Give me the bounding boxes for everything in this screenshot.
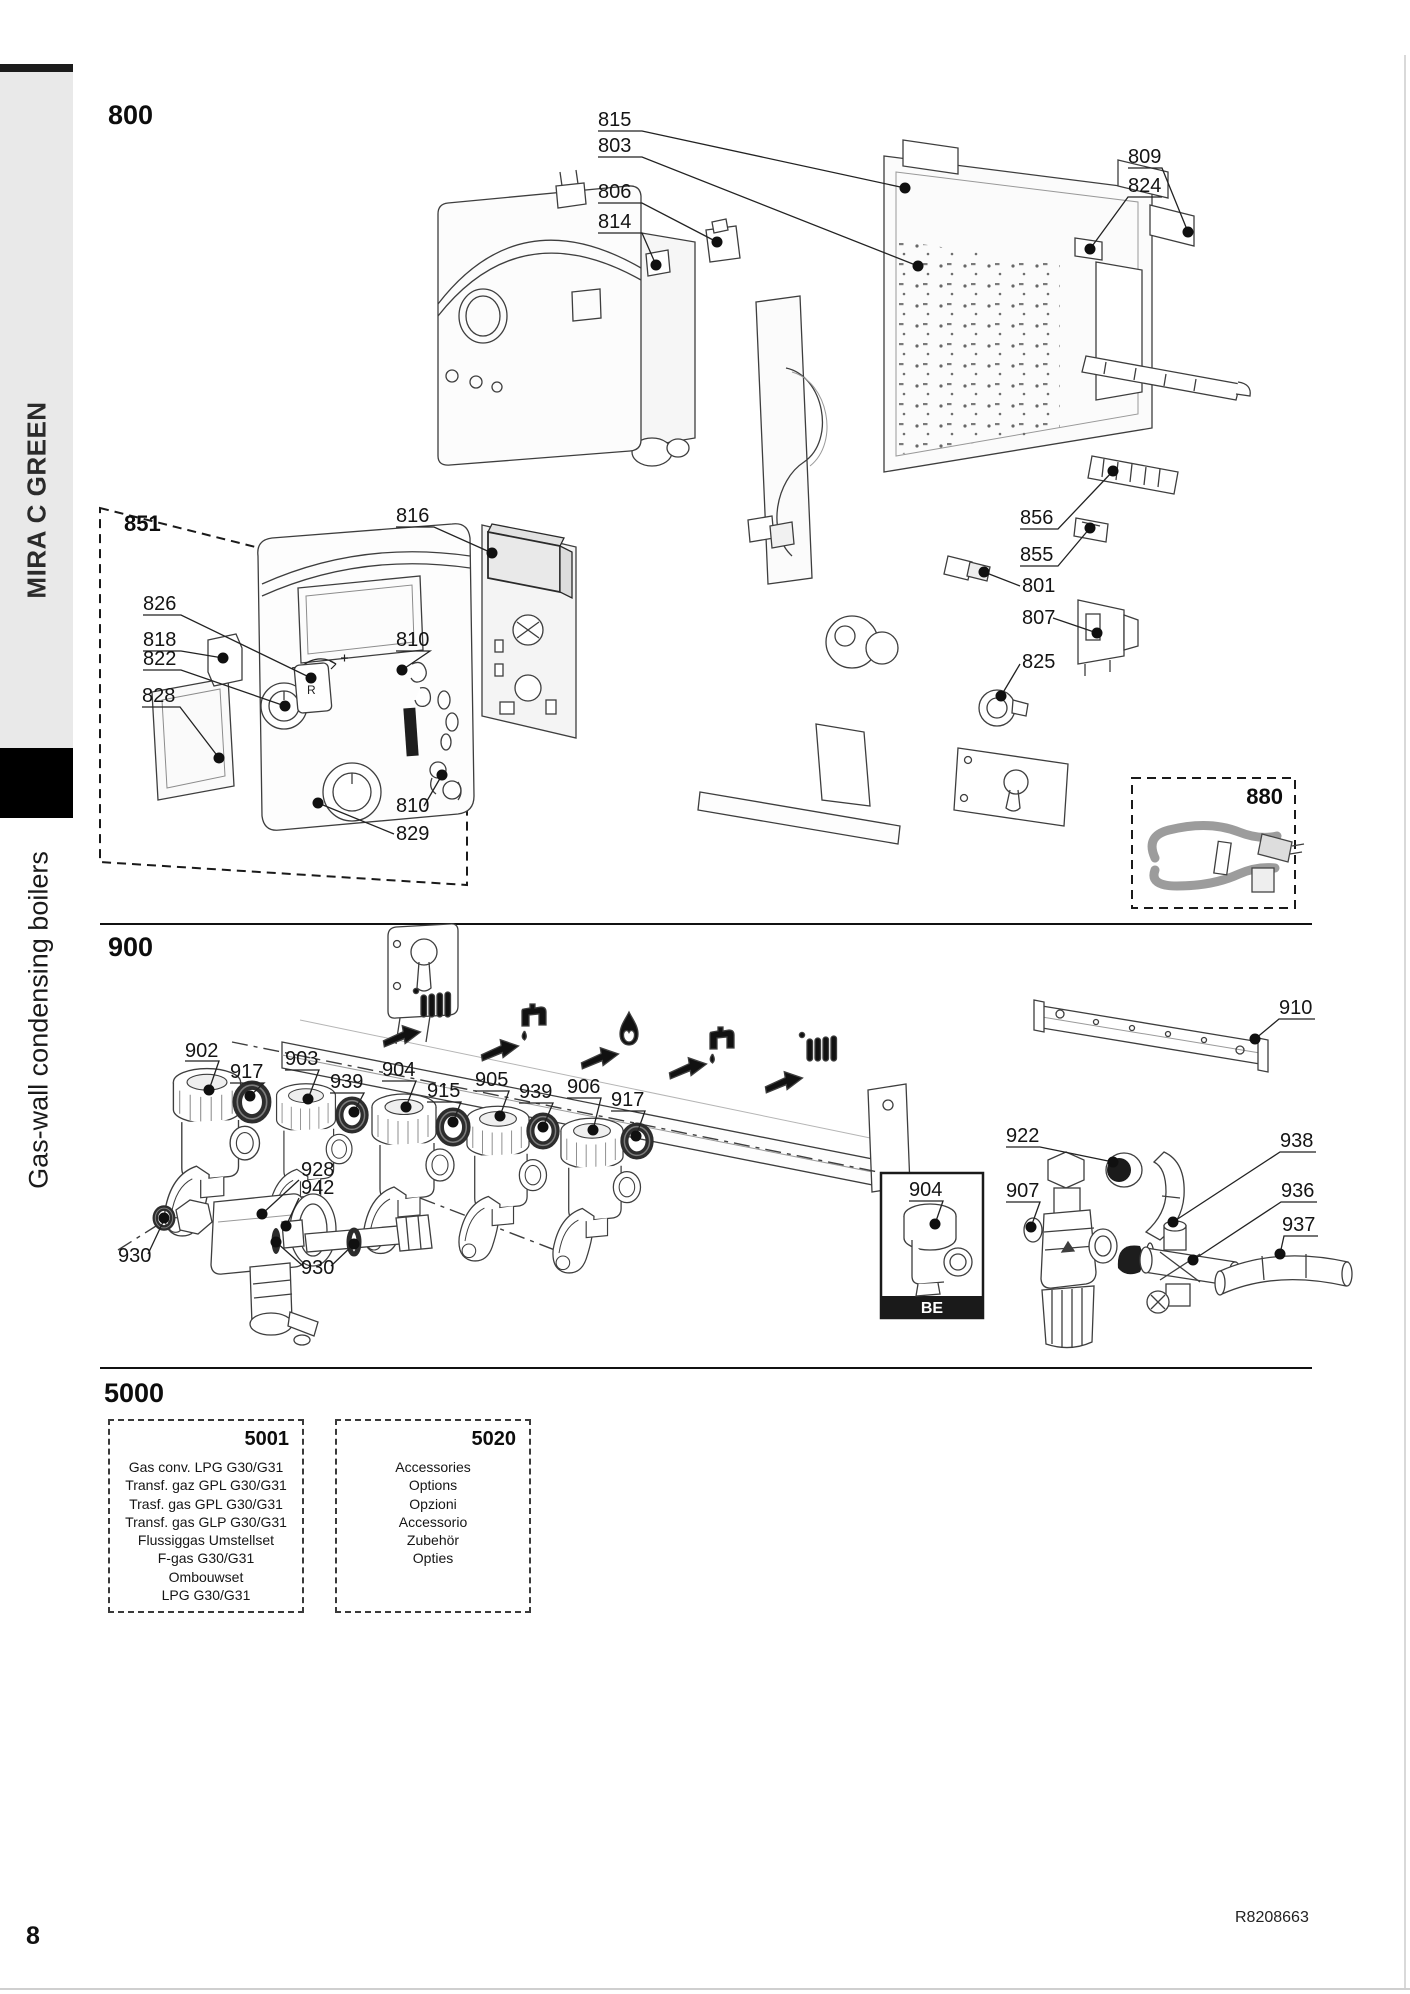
accessories-line: Accessorio xyxy=(337,1513,529,1531)
group-label-851: 851 xyxy=(124,511,161,536)
part-label-939a: 939 xyxy=(330,1071,363,1093)
flow-arrow-icon xyxy=(668,1055,708,1079)
catalog-page: MIRA C GREEN Gas-wall condensing boilers… xyxy=(0,0,1410,1994)
flow-arrow-icon xyxy=(382,1023,422,1047)
accessories-line: Opzioni xyxy=(337,1495,529,1513)
kit-line: Ombouwset xyxy=(110,1568,302,1586)
part-label-917a: 917 xyxy=(230,1061,263,1083)
part-label-809: 809 xyxy=(1128,146,1161,168)
group-label-880: 880 xyxy=(1246,784,1283,809)
accessories-line: Accessories xyxy=(337,1458,529,1476)
kit-line: Transf. gaz GPL G30/G31 xyxy=(110,1476,302,1494)
part-label-915: 915 xyxy=(427,1080,460,1102)
part-label-814: 814 xyxy=(598,211,631,233)
part-label-807: 807 xyxy=(1022,607,1055,629)
flow-arrow-icon xyxy=(764,1069,804,1093)
kit-line: Gas conv. LPG G30/G31 xyxy=(110,1458,302,1476)
part-label-855: 855 xyxy=(1020,544,1053,566)
accessories-line: Zubehör xyxy=(337,1531,529,1549)
part-label-810b: 810 xyxy=(396,795,429,817)
flame-icon xyxy=(620,1012,638,1045)
part-label-936: 936 xyxy=(1281,1180,1314,1202)
part-label-906: 906 xyxy=(567,1076,600,1098)
part-label-930b: 930 xyxy=(301,1257,334,1279)
exploded-diagram-svg: 815 803 806 814 809 824 856 855 801 807 … xyxy=(0,0,1410,1994)
part-label-815: 815 xyxy=(598,109,631,131)
document-reference: R8208663 xyxy=(1235,1909,1309,1927)
be-country-badge: BE xyxy=(921,1300,944,1317)
part-label-822: 822 xyxy=(143,648,176,670)
part-label-917b: 917 xyxy=(611,1089,644,1111)
kit-line: Flussiggas Umstellset xyxy=(110,1531,302,1549)
part-label-903: 903 xyxy=(285,1048,318,1070)
kit-code-5001: 5001 xyxy=(110,1421,302,1451)
kit-line: F-gas G30/G31 xyxy=(110,1549,302,1567)
flow-arrow-icon xyxy=(480,1037,520,1061)
part-label-930a: 930 xyxy=(118,1245,151,1267)
oring-917 xyxy=(237,1085,266,1119)
gas-conversion-kit-box: 5001 Gas conv. LPG G30/G31 Transf. gaz G… xyxy=(108,1419,304,1613)
kit-line: Trasf. gas GPL G30/G31 xyxy=(110,1495,302,1513)
part-label-904-be: 904 xyxy=(909,1179,942,1201)
flow-arrow-icon xyxy=(580,1045,620,1069)
page-scan-edge-bottom xyxy=(0,1988,1410,1990)
part-label-942: 942 xyxy=(301,1177,334,1199)
faucet-icon xyxy=(522,1004,546,1040)
part-label-922: 922 xyxy=(1006,1125,1039,1147)
part-label-801: 801 xyxy=(1022,575,1055,597)
faucet-icon xyxy=(710,1027,734,1063)
part-label-938: 938 xyxy=(1280,1130,1313,1152)
part-label-939b: 939 xyxy=(519,1081,552,1103)
part-label-806: 806 xyxy=(598,181,631,203)
accessories-line: Options xyxy=(337,1476,529,1494)
radiator-icon xyxy=(799,1032,836,1061)
part-label-902: 902 xyxy=(185,1040,218,1062)
diagram-800 xyxy=(100,140,1304,908)
kit-line: LPG G30/G31 xyxy=(110,1586,302,1604)
page-scan-edge-right xyxy=(1404,55,1406,1989)
kit-code-5020: 5020 xyxy=(337,1421,529,1451)
kit-line: Transf. gas GLP G30/G31 xyxy=(110,1513,302,1531)
part-label-910: 910 xyxy=(1279,997,1312,1019)
page-number: 8 xyxy=(26,1922,40,1951)
accessories-line: Opties xyxy=(337,1549,529,1567)
fascia-reset-button-label: R xyxy=(307,683,316,697)
part-label-828: 828 xyxy=(142,685,175,707)
part-label-937: 937 xyxy=(1282,1214,1315,1236)
diagram-900 xyxy=(118,924,1352,1348)
part-label-816: 816 xyxy=(396,505,429,527)
part-label-856: 856 xyxy=(1020,507,1053,529)
part-label-810a: 810 xyxy=(396,629,429,651)
part-label-829: 829 xyxy=(396,823,429,845)
part-label-907: 907 xyxy=(1006,1180,1039,1202)
part-label-826: 826 xyxy=(143,593,176,615)
accessories-box: 5020 Accessories Options Opzioni Accesso… xyxy=(335,1419,531,1613)
part-label-825: 825 xyxy=(1022,651,1055,673)
part-label-904: 904 xyxy=(382,1059,415,1081)
part-label-905: 905 xyxy=(475,1069,508,1091)
part-label-803: 803 xyxy=(598,135,631,157)
part-label-824: 824 xyxy=(1128,175,1161,197)
